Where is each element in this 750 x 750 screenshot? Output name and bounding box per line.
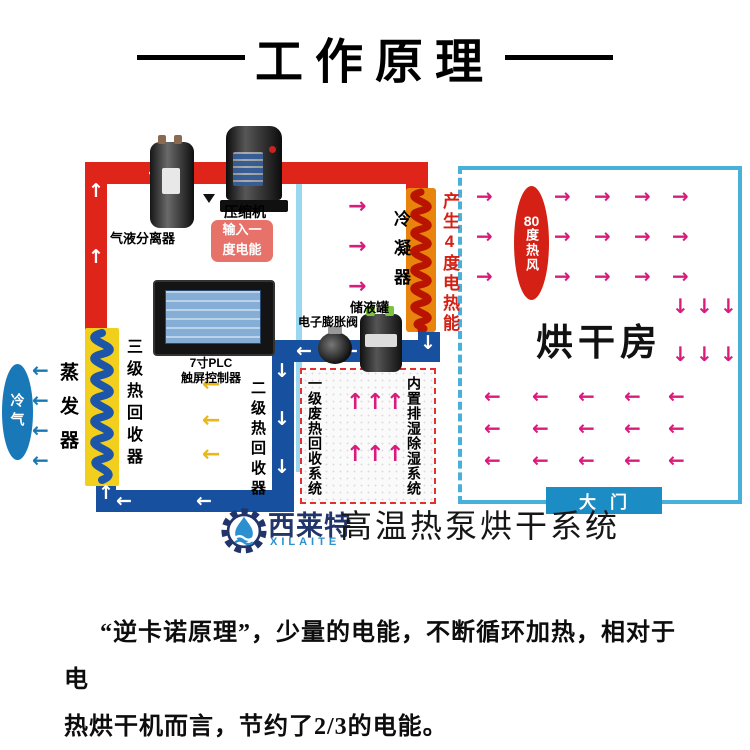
hot-air-left-icon: ←	[624, 450, 641, 470]
plc-controller	[153, 280, 275, 356]
hot-air-right-icon: →	[476, 266, 493, 286]
cold-air-left-icon: ←	[32, 360, 49, 380]
heat-flow-right-icon: →	[348, 276, 366, 298]
recovery1-label: 一级废热回收系统	[305, 376, 325, 498]
badge-line1: 输入一	[211, 220, 273, 240]
hot-air-right-icon: →	[634, 266, 651, 286]
title-rule-right	[505, 55, 613, 60]
compressor-nameplate	[233, 152, 263, 186]
flow-arrow-up-icon: ↑	[88, 182, 104, 201]
brand-name-en: XILAITE	[270, 536, 340, 548]
product-name: 高温热泵烘干系统	[340, 501, 620, 547]
hot-air-left-icon: ←	[532, 418, 549, 438]
caption-line2: 热烘干机而言，节约了2/3的电能。	[64, 704, 700, 750]
hot-air-down-icon: ↓	[720, 296, 737, 316]
caption-line1: “逆卡诺原理”，少量的电能，不断循环加热，相对于电	[64, 610, 700, 704]
cold-air-left-icon: ←	[32, 420, 49, 440]
hot-air-right-icon: →	[476, 226, 493, 246]
hot-wind-oval: 80 度热风	[514, 186, 549, 300]
hot-air-left-icon: ←	[624, 418, 641, 438]
compressor-label: 压缩机	[224, 202, 266, 222]
recovery-coil-icon	[85, 328, 119, 486]
hot-air-left-icon: ←	[532, 386, 549, 406]
hot-air-right-icon: →	[672, 266, 689, 286]
caption-paragraph: “逆卡诺原理”，少量的电能，不断循环加热，相对于电 热烘干机而言，节约了2/3的…	[64, 610, 700, 750]
evaporator-label: 蒸发器	[54, 362, 81, 477]
hot-air-right-icon: →	[554, 186, 571, 206]
working-principle-diagram: 烘干房 大门 冷凝器 产生4度电热能 三级热回收器 蒸发器	[0, 118, 750, 528]
heat-flow-right-icon: →	[348, 196, 366, 218]
hot-air-right-icon: →	[594, 186, 611, 206]
recovery2-flow-icon: ←	[202, 410, 220, 432]
hot-wind-number: 80	[524, 214, 540, 228]
plc-label-line1: 7寸PLC	[150, 356, 272, 371]
hot-air-right-icon: →	[476, 186, 493, 206]
flow-arrow-down-icon: ↓	[274, 458, 290, 477]
heat-flow-right-icon: →	[348, 236, 366, 258]
hot-air-left-icon: ←	[578, 418, 595, 438]
input-power-badge: 输入一 度电能	[211, 220, 273, 262]
waste-heat-up-icon: ↑	[366, 392, 384, 414]
gas-liquid-separator-device	[150, 142, 194, 228]
hot-air-left-icon: ←	[624, 386, 641, 406]
flow-arrow-down-icon: ↓	[420, 334, 436, 353]
waste-heat-up-icon: ↑	[346, 444, 364, 466]
plc-label: 7寸PLC 触屏控制器	[150, 356, 272, 386]
evaporator-recovery-coil	[85, 328, 119, 486]
valve-label: 电子膨胀阀	[298, 313, 358, 330]
badge-line2: 度电能	[211, 240, 273, 260]
flow-arrow-down-icon: ↓	[274, 362, 290, 381]
separator-nameplate	[162, 168, 180, 194]
waste-heat-up-icon: ↑	[386, 444, 404, 466]
plc-screen	[165, 290, 261, 344]
flow-arrow-up-icon: ↑	[88, 248, 104, 267]
heat-output-label: 产生4度电热能	[437, 192, 462, 340]
hot-air-down-icon: ↓	[720, 344, 737, 364]
hot-air-left-icon: ←	[668, 418, 685, 438]
hot-air-left-icon: ←	[532, 450, 549, 470]
hot-air-left-icon: ←	[484, 386, 501, 406]
recovery2-flow-icon: ←	[202, 444, 220, 466]
dehumidifier-label: 内置排湿除湿系统	[404, 376, 424, 498]
liquid-tank-device	[360, 314, 402, 372]
page-title: 工作原理	[255, 22, 495, 92]
title-rule-left	[137, 55, 245, 60]
condenser-label: 冷凝器	[388, 210, 413, 310]
flow-arrow-left-icon: ←	[296, 342, 312, 361]
recovery2-label: 二级热回收器	[247, 380, 268, 510]
tank-nameplate	[365, 334, 397, 347]
cold-air-left-icon: ←	[32, 450, 49, 470]
hot-air-left-icon: ←	[668, 450, 685, 470]
hot-air-down-icon: ↓	[696, 344, 713, 364]
hot-air-down-icon: ↓	[696, 296, 713, 316]
expansion-valve-device	[318, 332, 352, 364]
hot-air-left-icon: ←	[578, 450, 595, 470]
hot-air-down-icon: ↓	[672, 344, 689, 364]
title-row: 工作原理	[0, 22, 750, 92]
brand-footer: 西莱特 XILAITE 高温热泵烘干系统	[0, 500, 750, 562]
flow-arrow-down-icon: ↓	[274, 410, 290, 429]
hot-air-left-icon: ←	[484, 418, 501, 438]
hot-air-left-icon: ←	[578, 386, 595, 406]
hot-air-right-icon: →	[554, 226, 571, 246]
page: 工作原理 烘干房 大门 冷凝器 产生4度电热能	[0, 0, 750, 750]
drying-room-label: 烘干房	[536, 312, 662, 366]
cold-air-left-icon: ←	[32, 390, 49, 410]
cold-air-oval: 冷气	[2, 364, 33, 460]
separator-label: 气液分离器	[110, 228, 175, 247]
hot-air-right-icon: →	[634, 186, 651, 206]
hot-air-down-icon: ↓	[672, 296, 689, 316]
hot-air-right-icon: →	[594, 226, 611, 246]
hot-air-left-icon: ←	[484, 450, 501, 470]
hot-air-right-icon: →	[672, 186, 689, 206]
brand-gear-drop-icon	[221, 504, 267, 556]
waste-heat-up-icon: ↑	[366, 444, 384, 466]
hot-air-right-icon: →	[672, 226, 689, 246]
cold-air-label: 冷气	[8, 393, 28, 431]
hot-air-right-icon: →	[634, 226, 651, 246]
down-pointer-icon	[203, 194, 215, 203]
hot-air-right-icon: →	[594, 266, 611, 286]
hot-air-right-icon: →	[554, 266, 571, 286]
plc-label-line2: 触屏控制器	[150, 371, 272, 386]
waste-heat-up-icon: ↑	[346, 392, 364, 414]
compressor-device	[226, 126, 282, 200]
hot-wind-chars: 度热风	[522, 228, 541, 273]
hot-air-left-icon: ←	[668, 386, 685, 406]
waste-heat-up-icon: ↑	[386, 392, 404, 414]
compressor-knob	[269, 146, 276, 153]
recovery3-label: 三级热回收器	[120, 338, 144, 483]
